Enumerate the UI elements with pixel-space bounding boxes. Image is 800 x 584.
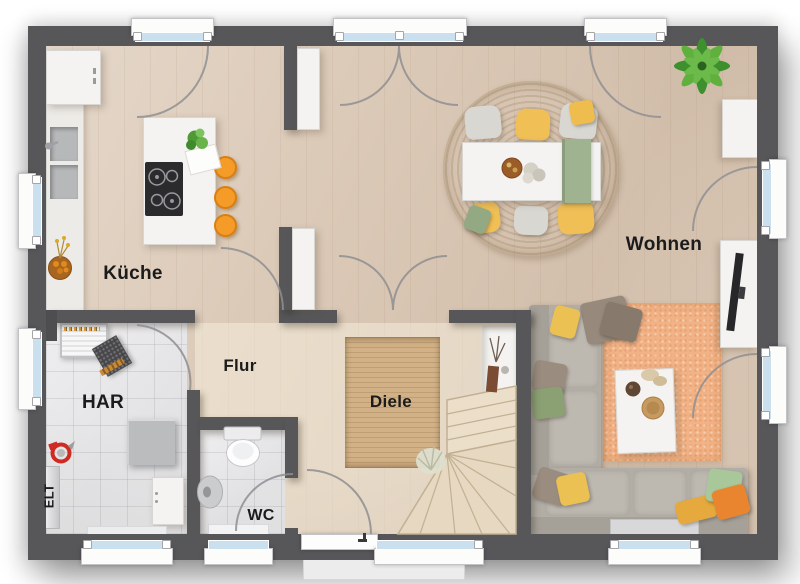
pillow-green-mid (530, 386, 565, 420)
wall-wc-top (200, 417, 285, 430)
room-label-flur: Flur (223, 356, 256, 376)
wall-wc-right (285, 417, 298, 478)
stair-niche-shelf (482, 325, 518, 400)
dining-chair-bottom-3 (557, 202, 595, 235)
dryer-controls (155, 492, 158, 495)
bar-stool-3 (214, 214, 237, 237)
wall-exterior-right (757, 26, 778, 560)
wall-stub-flur-diele (279, 227, 292, 310)
bar-stool-2 (214, 186, 237, 209)
kitchen-sink-basin-2 (50, 165, 78, 199)
dining-chair-bottom-2 (514, 205, 549, 235)
dryer-appliance (152, 477, 184, 525)
wall-har-flur (187, 390, 200, 534)
wall-exterior-left (28, 26, 46, 560)
wall-stub-kitchen-dining (284, 46, 297, 130)
kitchen-sink-basin-1 (50, 127, 78, 161)
room-label-elt: ELT (42, 484, 57, 509)
wall-diele-living (516, 310, 531, 534)
kitchen-cooktop (145, 162, 183, 216)
room-label-har: HAR (82, 392, 124, 414)
sideboard (722, 99, 759, 158)
kitchen-fridge-handle-2 (93, 78, 96, 84)
room-label-diele: Diele (370, 392, 412, 412)
wall-kitchen-har (46, 310, 195, 323)
wall-flur-stub (279, 310, 337, 323)
door-panel-kitchen (297, 48, 320, 130)
room-label-wc: WC (247, 507, 274, 525)
dining-chair-top-1 (464, 104, 503, 140)
kitchen-fridge-handle (93, 68, 96, 74)
heating-unit-ticks (64, 327, 100, 331)
table-runner (562, 139, 591, 203)
tv-console (720, 240, 759, 348)
chair-throw-yellow (568, 99, 596, 126)
coffee-table (615, 368, 677, 454)
washing-machine (127, 419, 175, 465)
dining-chair-top-2 (515, 108, 551, 141)
pillow-yellow-bottom (555, 471, 591, 507)
room-label-wohnen: Wohnen (626, 234, 702, 256)
room-label-kueche: Küche (103, 263, 163, 285)
door-panel-flur (292, 228, 315, 310)
